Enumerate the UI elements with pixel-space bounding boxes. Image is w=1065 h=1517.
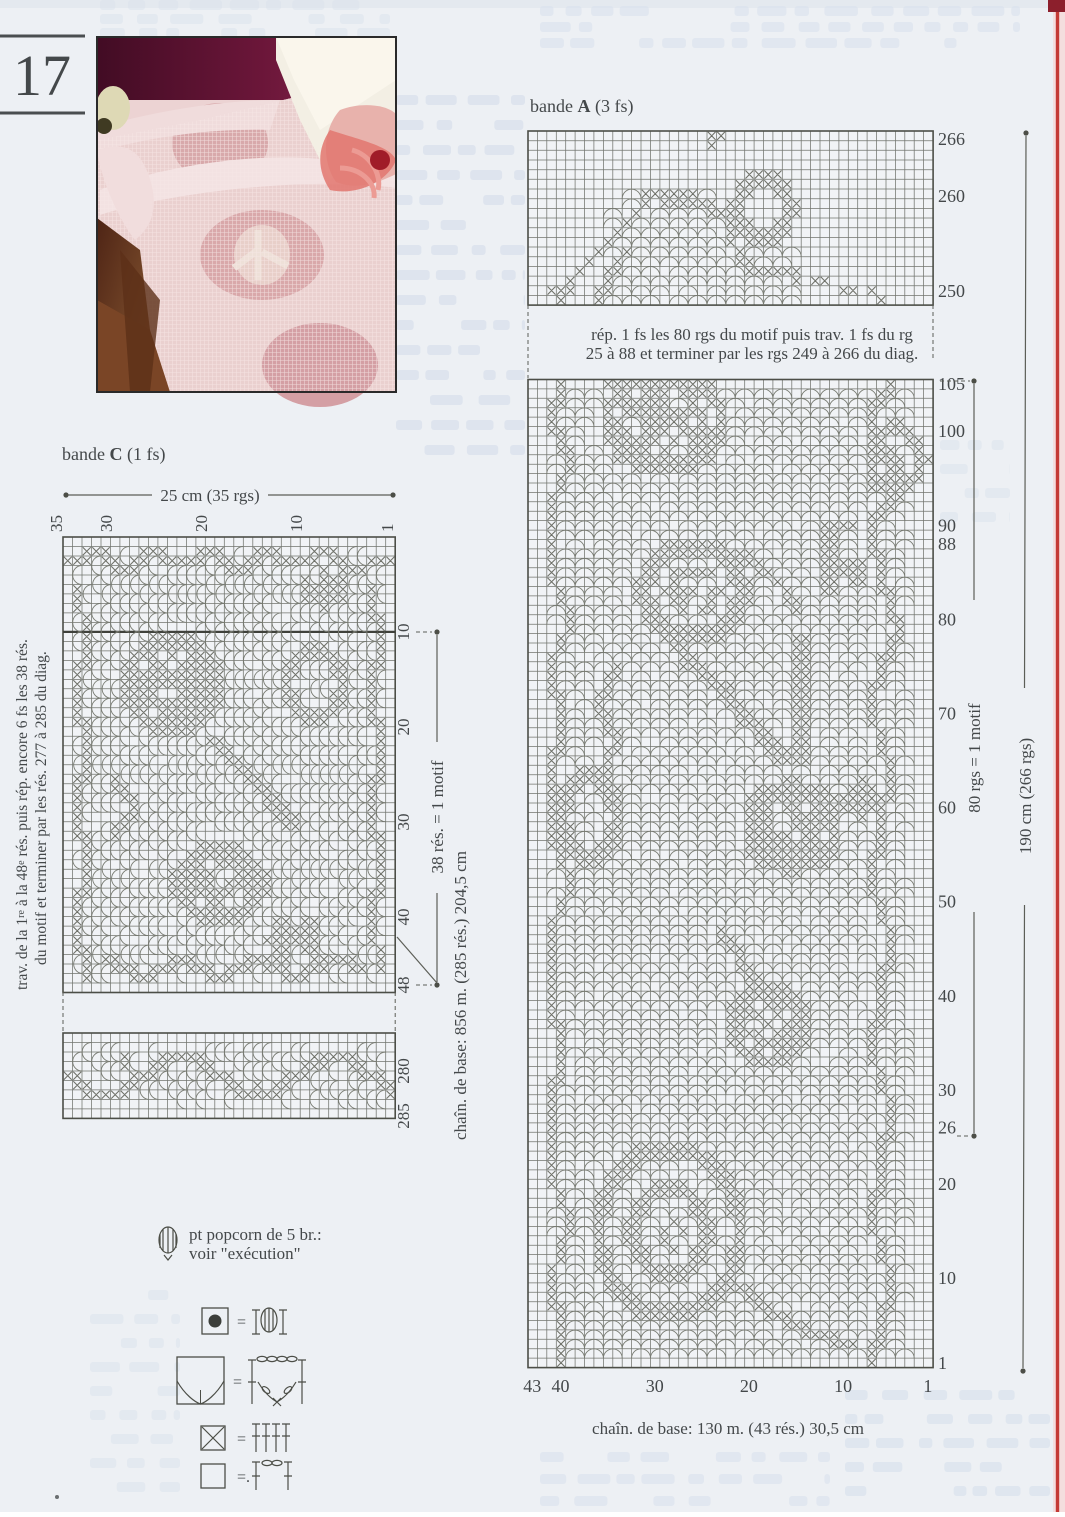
svg-text:10: 10	[834, 1376, 852, 1396]
svg-text:266: 266	[938, 129, 965, 149]
svg-text:250: 250	[938, 281, 965, 301]
svg-text:105: 105	[938, 374, 965, 394]
svg-text:260: 260	[938, 186, 965, 206]
svg-text:80: 80	[938, 609, 956, 629]
svg-text:285: 285	[394, 1103, 413, 1129]
svg-text:280: 280	[394, 1058, 413, 1084]
svg-text:voir "exécution": voir "exécution"	[189, 1244, 301, 1263]
svg-text:1: 1	[938, 1353, 947, 1373]
svg-text:70: 70	[938, 704, 956, 724]
svg-text:40: 40	[938, 986, 956, 1006]
svg-text:25 cm (35 rgs): 25 cm (35 rgs)	[160, 486, 259, 505]
svg-text:40: 40	[394, 909, 413, 926]
svg-text:=: =	[237, 1431, 246, 1448]
svg-text:chaîn. de base: 130 m. (43 rés: chaîn. de base: 130 m. (43 rés.) 30,5 cm	[592, 1419, 864, 1438]
svg-text:30: 30	[97, 515, 116, 532]
svg-text:pt popcorn de 5 br.:: pt popcorn de 5 br.:	[189, 1225, 322, 1244]
svg-text:17: 17	[13, 43, 71, 108]
svg-text:rép. 1 fs les 80 rgs du motif: rép. 1 fs les 80 rgs du motif puis trav.…	[591, 325, 913, 344]
svg-text:35: 35	[47, 515, 66, 532]
svg-text:30: 30	[938, 1080, 956, 1100]
svg-text:48: 48	[394, 977, 413, 994]
svg-text:43: 43	[523, 1376, 541, 1396]
svg-text:20: 20	[394, 719, 413, 736]
svg-text:38 rés. = 1 motif: 38 rés. = 1 motif	[428, 760, 447, 873]
svg-text:40: 40	[552, 1376, 570, 1396]
svg-text:50: 50	[938, 892, 956, 912]
svg-text:10: 10	[394, 624, 413, 641]
svg-text:20: 20	[938, 1174, 956, 1194]
svg-text:30: 30	[394, 814, 413, 831]
svg-text:100: 100	[938, 421, 965, 441]
svg-text:1: 1	[923, 1376, 932, 1396]
svg-text:=: =	[233, 1374, 242, 1391]
svg-text:30: 30	[646, 1376, 664, 1396]
svg-text:=.: =.	[237, 1469, 250, 1486]
svg-text:bande A (3 fs): bande A (3 fs)	[530, 96, 633, 117]
svg-text:chaîn. de base: 856 m. (285 ré: chaîn. de base: 856 m. (285 rés.) 204,5 …	[451, 851, 470, 1140]
svg-text:26: 26	[938, 1118, 956, 1138]
svg-text:1: 1	[378, 524, 397, 533]
svg-text:trav. de la 1re à la 48e rés.: trav. de la 1re à la 48e rés. puis rép. …	[14, 639, 31, 990]
svg-text:10: 10	[938, 1268, 956, 1288]
svg-text:20: 20	[740, 1376, 758, 1396]
svg-text:60: 60	[938, 798, 956, 818]
svg-text:90: 90	[938, 515, 956, 535]
svg-text:20: 20	[192, 515, 211, 532]
svg-text:du motif et terminer par les r: du motif et terminer par les rés. 277 à …	[33, 651, 50, 965]
svg-text:=: =	[237, 1314, 246, 1331]
svg-text:bande C (1 fs): bande C (1 fs)	[62, 444, 165, 465]
svg-text:190 cm (266 rgs): 190 cm (266 rgs)	[1016, 738, 1035, 854]
svg-text:10: 10	[287, 515, 306, 532]
svg-text:80 rgs = 1 motif: 80 rgs = 1 motif	[965, 703, 984, 813]
svg-text:88: 88	[938, 534, 956, 554]
svg-text:25 à 88 et terminer par les rg: 25 à 88 et terminer par les rgs 249 à 26…	[586, 344, 919, 363]
